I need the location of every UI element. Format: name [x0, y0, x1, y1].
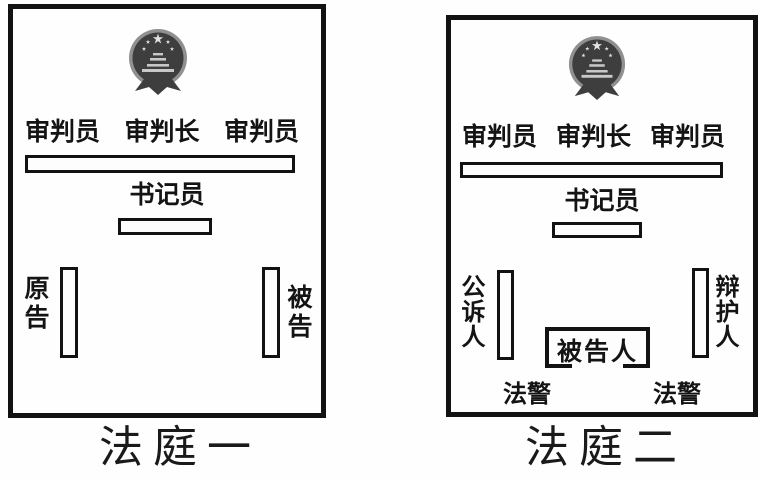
defender-table	[692, 268, 709, 358]
judge-left-label: 审判员	[25, 120, 100, 145]
clerk-desk	[118, 218, 212, 235]
judge-bench	[25, 155, 295, 173]
presiding-judge-label: 审判长	[124, 120, 199, 145]
judge-right-label: 审判员	[224, 120, 299, 145]
bailiff-right-label: 法警	[653, 383, 701, 407]
clerk-desk	[552, 222, 642, 238]
judges-row: 审判员 审判长 审判员	[462, 125, 725, 150]
plaintiff-label: 原告	[22, 275, 47, 333]
clerk-label: 书记员	[13, 183, 321, 208]
national-emblem-icon	[567, 33, 627, 108]
prosecutor-label: 公诉人	[458, 274, 482, 349]
courtroom2-box: 审判员 审判长 审判员 书记员 公诉人 辩护人 被告人 法警 法警	[446, 15, 758, 417]
judge-left-label: 审判员	[462, 125, 537, 150]
courtroom1-caption: 法庭一	[21, 424, 339, 472]
judge-right-label: 审判员	[650, 125, 725, 150]
prosecutor-table	[497, 270, 514, 360]
judge-bench	[460, 162, 723, 178]
courtroom1-box: 审判员 审判长 审判员 书记员 原告 被告	[8, 4, 326, 418]
defendant-dock-label: 被告人	[557, 332, 638, 368]
judges-row: 审判员 审判长 审判员	[25, 120, 299, 145]
courtroom-layout-diagram: 审判员 审判长 审判员 书记员 原告 被告 法庭一 审判员	[0, 0, 761, 480]
defender-label: 辩护人	[712, 274, 736, 349]
presiding-judge-label: 审判长	[556, 125, 631, 150]
clerk-label: 书记员	[451, 189, 753, 214]
bailiff-left-label: 法警	[503, 383, 551, 407]
defendant-dock: 被告人	[545, 327, 650, 368]
national-emblem-icon	[127, 27, 189, 102]
defendant-table	[262, 267, 280, 358]
defendant-label: 被告	[285, 284, 310, 342]
courtroom2-caption: 法庭二	[446, 424, 761, 472]
plaintiff-table	[60, 267, 78, 358]
